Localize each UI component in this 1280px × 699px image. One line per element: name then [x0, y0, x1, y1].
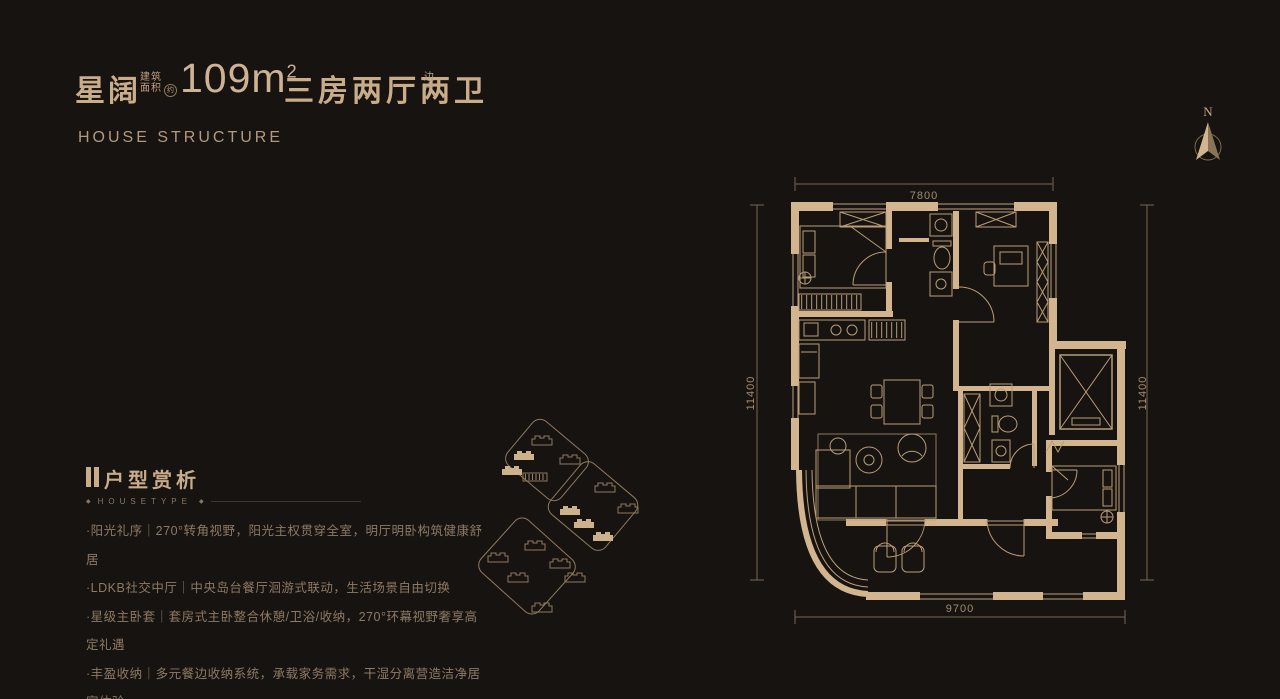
feature-item: ·阳光礼序｜270°转角视野，阳光主权贯穿全室，明厅明卧构筑健康舒居: [86, 517, 486, 574]
area-number: 109m: [180, 55, 287, 101]
bathroom1-fixtures: [930, 214, 952, 296]
unit-tag-line2: 户: [424, 83, 435, 94]
section-marker: [86, 467, 99, 487]
diamond-ornament-right: ◆: [199, 498, 204, 505]
page-subtitle: HOUSE STRUCTURE: [78, 129, 283, 147]
brochure-page: 星阔 建筑 面积 约 109m2 三房两厅两卫 边 户 HOUSE STRUCT…: [0, 0, 1280, 699]
walls: [791, 202, 1126, 600]
bed3-icon: [1052, 466, 1116, 523]
dimension-lines: [750, 177, 1154, 624]
compass-north-label: N: [1203, 104, 1213, 119]
sofa-icon: [816, 434, 936, 520]
section-title: 户型赏析: [104, 464, 200, 493]
diamond-ornament-left: ◆: [86, 498, 91, 505]
bed-icon: [799, 226, 886, 288]
unit-tag-line1: 边: [424, 72, 435, 83]
balcony-curve: [799, 470, 868, 594]
section-tagline-text: HOUSETYPE: [98, 497, 192, 506]
tagline-rule: [211, 501, 361, 502]
site-plan: [460, 415, 660, 625]
feature-list: ·阳光礼序｜270°转角视野，阳光主权贯穿全室，明厅明卧构筑健康舒居 ·LDKB…: [86, 517, 486, 699]
site-buildings-highlight: [502, 451, 613, 541]
feature-item: ·LDKB社交中厅｜中央岛台餐厅洄游式联动，生活场景自由切换: [86, 574, 486, 603]
elevator-icon: [1060, 355, 1112, 429]
compass-arrow-left: [1196, 122, 1208, 160]
layout-type: 三房两厅两卫: [284, 66, 488, 110]
area-label: 建筑 面积: [140, 72, 162, 94]
north-compass-icon: N: [1186, 102, 1230, 168]
dim-top: 7800: [910, 190, 938, 202]
approx-badge: 约: [164, 84, 177, 97]
feature-item: ·丰盈收纳｜多元餐边收纳系统，承载家务需求，干湿分离营造洁净居家体验: [86, 660, 486, 699]
kitchen-icons: [799, 320, 905, 414]
desk-icon: [984, 242, 1048, 322]
dim-right: 11400: [1137, 376, 1149, 411]
section-tagline: ◆ HOUSETYPE ◆: [86, 497, 361, 506]
feature-item: ·星级主卧套｜套房式主卧整合休憩/卫浴/收纳，270°环幕视野奢享高定礼遇: [86, 603, 486, 660]
compass-arrow-right: [1208, 122, 1220, 160]
floor-plan: 7800 9700 11400 11400: [740, 168, 1170, 630]
area-value: 109m2: [180, 55, 298, 102]
bathroom2-fixtures: [964, 384, 1017, 462]
dim-bottom: 9700: [946, 603, 974, 615]
unit-position-tag: 边 户: [424, 72, 435, 94]
area-label-line1: 建筑: [140, 72, 162, 83]
balcony-chair-icons: [874, 543, 924, 572]
wardrobe-icon: [799, 294, 861, 310]
site-label-box: [523, 473, 547, 481]
bay-window-icon: [840, 212, 1016, 227]
dining-table-icon: [871, 380, 933, 424]
project-name: 星阔: [75, 66, 141, 110]
area-label-line2: 面积: [140, 83, 162, 94]
dim-left: 11400: [745, 376, 757, 411]
site-parcels: [475, 415, 642, 618]
